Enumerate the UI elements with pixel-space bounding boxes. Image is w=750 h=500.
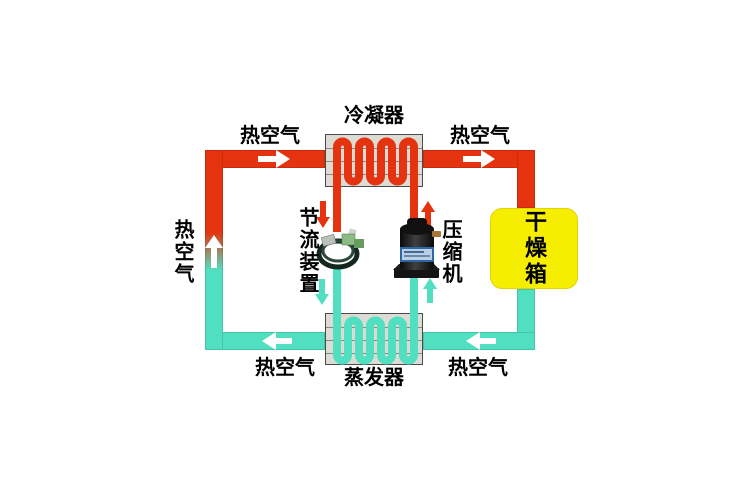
hot-air-label-top-right: 热空气: [450, 126, 510, 146]
cool-air-duct-bottom-right: [423, 332, 535, 350]
evaporator-label: 蒸发器: [325, 368, 423, 388]
hot-air-label-bottom-right: 热空气: [448, 358, 508, 378]
drying-box-label: 干燥箱: [523, 210, 545, 288]
condenser-fin: [326, 174, 422, 175]
condenser-unit: [325, 134, 423, 187]
compressor: [393, 218, 441, 278]
evaporator-fin: [326, 327, 422, 328]
refrigerant-arrow-up-icon: [423, 278, 437, 303]
refrigerant-arrow-up-icon: [421, 201, 435, 227]
throttle-device: [319, 228, 364, 267]
hot-air-label-left-side: 热空气: [172, 219, 192, 285]
refrigerant-arrow-down-icon: [316, 201, 330, 228]
hot-air-label-top-left: 热空气: [240, 126, 300, 146]
evaporator-fin: [326, 353, 422, 354]
condenser-fin: [326, 161, 422, 162]
heat-pump-drying-diagram: 干燥箱: [0, 0, 750, 500]
throttle-device-label: 节流装置: [297, 207, 317, 295]
condenser-fin: [326, 148, 422, 149]
hot-air-label-bottom-left: 热空气: [255, 358, 315, 378]
compressor-label: 压缩机: [440, 219, 460, 285]
condenser-label: 冷凝器: [325, 106, 423, 126]
evaporator-unit: [325, 313, 423, 365]
cool-air-duct-bottom-left: [205, 332, 325, 350]
air-duct-left-riser: [205, 150, 223, 350]
diagram-overlay: [0, 0, 750, 500]
drying-box: 干燥箱: [490, 208, 578, 289]
hot-air-duct-top-left: [205, 150, 325, 168]
hot-air-duct-right-down: [517, 150, 535, 208]
evaporator-fin: [326, 340, 422, 341]
